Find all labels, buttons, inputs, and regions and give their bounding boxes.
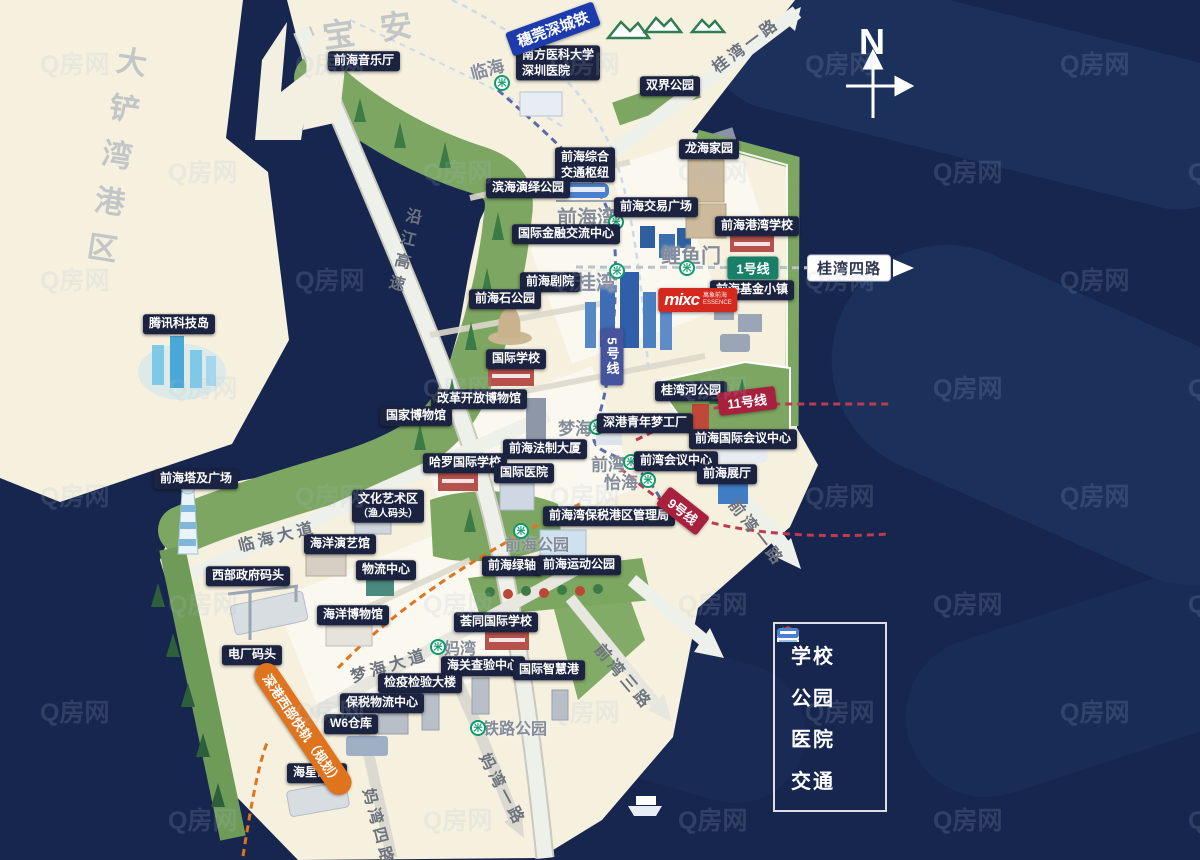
fazhi-tower <box>526 398 546 444</box>
mixc-logo: mixc <box>664 290 699 310</box>
poi-badge: 国际金融交流中心 <box>512 224 620 244</box>
metro-line-badge: 1号线 <box>727 257 778 280</box>
legend-row-park: 公园 <box>791 682 885 711</box>
poi-badge: 前海港湾学校 <box>715 216 799 236</box>
poi-badge: 双界公园 <box>640 76 700 96</box>
road-label: 桂湾四路 <box>807 255 891 282</box>
legend-label-park: 公园 <box>791 682 835 711</box>
hospital-building <box>520 92 562 116</box>
poi-badge: 国际医院 <box>494 463 554 483</box>
poi-badge: 前海运动公园 <box>537 555 621 575</box>
poi-badge: 海洋演艺馆 <box>304 534 376 554</box>
poi-badge: 前海石公园 <box>469 289 541 309</box>
poi-badge: W6仓库 <box>324 714 378 734</box>
poi-badge: 前海国际会议中心 <box>689 429 797 449</box>
poi-badge: 文化艺术区（渔人码头） <box>352 490 424 523</box>
station-label: 铁路公园 <box>483 715 547 739</box>
poi-badge: 前海交易广场 <box>614 197 698 217</box>
legend-row-hospital: 医院 <box>791 723 885 752</box>
legend-row-school: 学校 <box>791 640 885 669</box>
guiwan-park-tower <box>692 404 709 430</box>
poi-badge: 保税物流中心 <box>340 693 424 713</box>
logistics-center-building <box>366 578 394 596</box>
mixc-project-badge: mixc 萬象前海ESSENCE <box>658 288 737 312</box>
poi-badge: 深港青年梦工厂 <box>597 413 693 433</box>
poi-badge: 国际学校 <box>486 349 546 369</box>
poi-badge: 前海绿轴 <box>482 556 542 576</box>
legend-row-transit: 交通 <box>791 765 885 794</box>
intl-conference-center-building <box>716 448 768 463</box>
ocean-museum-building <box>326 626 372 646</box>
poi-badge: 西部政府码头 <box>206 566 290 586</box>
poi-badge: 荟同国际学校 <box>454 612 538 632</box>
metro-station-icon: 米 <box>679 260 695 276</box>
poi-badge: 国际智慧港 <box>513 660 585 680</box>
metro-station-icon: 米 <box>430 639 446 655</box>
metro-station-icon: 米 <box>494 75 510 91</box>
poi-badge: 龙海家园 <box>679 139 739 159</box>
poi-badge: 前海音乐厅 <box>328 51 400 71</box>
metro-station-icon: 米 <box>640 472 656 488</box>
transit-icon <box>775 624 801 644</box>
poi-badge: 国家博物馆 <box>380 406 452 426</box>
legend: 学校 公园 医院 <box>773 622 887 812</box>
mixc-subtitle: 萬象前海ESSENCE <box>703 293 732 307</box>
metro-station-icon: 米 <box>470 720 486 736</box>
legend-label-school: 学校 <box>791 640 835 669</box>
metro-station-icon: 米 <box>513 523 529 539</box>
w6-warehouse-building <box>346 736 388 756</box>
poi-badge: 检疫检验大楼 <box>378 673 462 693</box>
poi-badge: 前海展厅 <box>697 464 757 484</box>
metro-line-badge: 5号线 <box>601 328 624 385</box>
poi-badge: 滨海演绎公园 <box>486 178 570 198</box>
ocean-theater-building <box>306 552 346 576</box>
poi-badge: 桂湾河公园 <box>655 381 727 401</box>
poi-badge: 海洋博物馆 <box>317 605 389 625</box>
poi-badge: 前海法制大厦 <box>503 439 587 459</box>
poi-badge: 物流中心 <box>356 560 416 580</box>
intl-hospital-building <box>500 484 534 510</box>
station-label: 怡海 <box>604 469 638 494</box>
qianhai-area-map[interactable]: 大铲湾港区宝安前海音乐厅南方医科大学深圳医院双界公园龙海家园前海综合交通枢纽滨海… <box>0 0 1200 860</box>
legend-label-hospital: 医院 <box>791 723 835 752</box>
compass-north-label: N <box>859 21 885 63</box>
station-label: 梦海 <box>558 415 592 440</box>
legend-label-transit: 交通 <box>791 765 835 794</box>
metro-station-icon: 米 <box>609 263 625 279</box>
poi-badge: 前海湾保税港区管理局 <box>543 506 675 526</box>
poi-badge: 电厂码头 <box>222 645 282 665</box>
poi-badge: 腾讯科技岛 <box>143 314 215 334</box>
poi-badge: 前海塔及广场 <box>154 469 238 489</box>
